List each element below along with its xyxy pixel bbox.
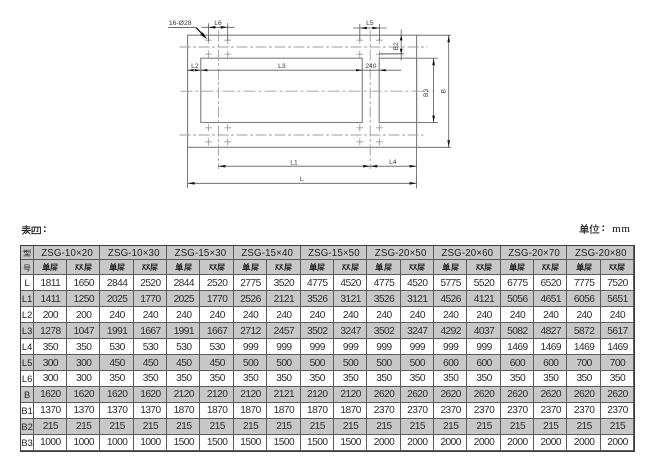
svg-text:B: B <box>441 88 448 93</box>
svg-text:L5: L5 <box>366 20 374 27</box>
svg-text:B2: B2 <box>393 42 400 50</box>
svg-text:L4: L4 <box>389 159 397 166</box>
svg-text:L3: L3 <box>278 63 286 70</box>
svg-text:L6: L6 <box>214 20 222 27</box>
svg-text:240: 240 <box>365 63 376 70</box>
svg-text:L1: L1 <box>290 159 298 166</box>
svg-text:L: L <box>300 176 304 183</box>
svg-text:B3: B3 <box>423 89 430 97</box>
svg-text:16-Ø28: 16-Ø28 <box>169 20 192 27</box>
svg-text:L2: L2 <box>191 63 199 70</box>
